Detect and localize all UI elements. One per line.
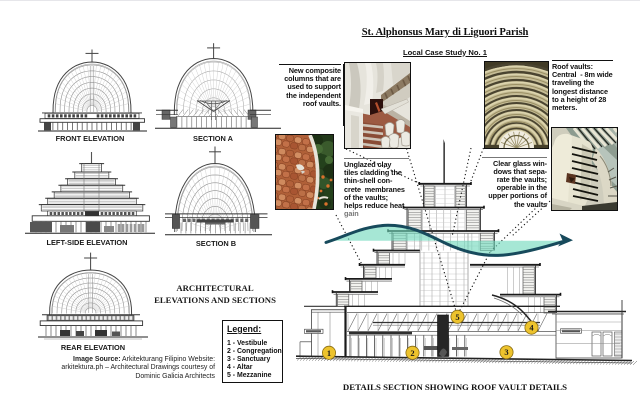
svg-text:3: 3 [504,347,508,357]
svg-text:5: 5 [455,312,459,322]
svg-text:2: 2 [410,348,414,358]
svg-text:1: 1 [327,348,331,358]
